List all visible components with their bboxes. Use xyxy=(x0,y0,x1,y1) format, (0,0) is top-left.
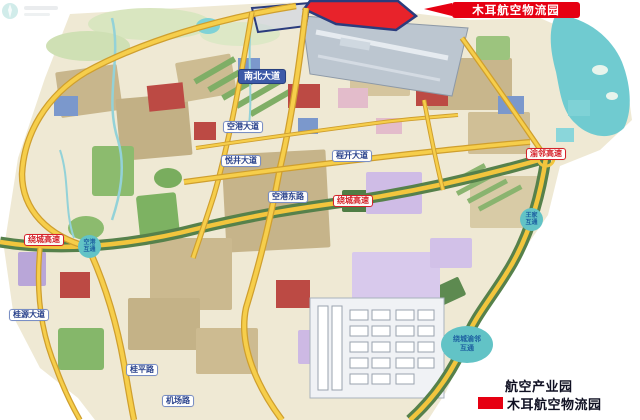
road-label-ring-expressway-west: 绕城高速 xyxy=(24,234,64,246)
legend-item-logistics-park: 木耳航空物流园 xyxy=(478,394,602,412)
road-label-guiping-road: 桂平路 xyxy=(126,364,158,376)
corner-logo xyxy=(0,0,70,22)
legend-item-industrial-park: 航空产业园 xyxy=(478,376,602,394)
park-banner: 木耳航空物流园 xyxy=(452,2,580,18)
legend-red-swatch xyxy=(478,397,503,409)
legend: 航空产业园 木耳航空物流园 xyxy=(478,376,602,412)
road-label-konggang-east: 空港东路 xyxy=(268,191,308,203)
road-label-guiyuan-avenue: 桂源大道 xyxy=(9,309,49,321)
legend-label: 航空产业园 xyxy=(505,376,573,395)
road-label-ring-expressway-mid: 绕城高速 xyxy=(333,195,373,207)
road-label-jichang-road: 机场路 xyxy=(162,395,194,407)
road-label-konggang-avenue: 空港大道 xyxy=(223,121,263,133)
road-label-chengkai-avenue: 程开大道 xyxy=(332,150,372,162)
road-label-yuejing-avenue: 悦井大道 xyxy=(221,155,261,167)
interchange-badge-raocheng-yulin: 绕城渝邻 互通 xyxy=(441,326,493,363)
logistics-yard xyxy=(310,298,444,398)
interchange-badge-konggang: 空港 互通 xyxy=(78,235,101,258)
interchange-badge-wangjia: 王家 互通 xyxy=(520,208,543,231)
planning-map: 木耳航空物流园 南北大道 空港大道 悦井大道 程开大道 空港东路 绕城高速 绕城… xyxy=(0,0,640,420)
banner-arrow xyxy=(424,3,452,16)
map-canvas xyxy=(0,0,640,420)
legend-label: 木耳航空物流园 xyxy=(507,394,602,413)
road-label-nanbei-avenue: 南北大道 xyxy=(238,69,286,84)
road-label-yulin-expressway: 渝邻高速 xyxy=(526,148,566,160)
